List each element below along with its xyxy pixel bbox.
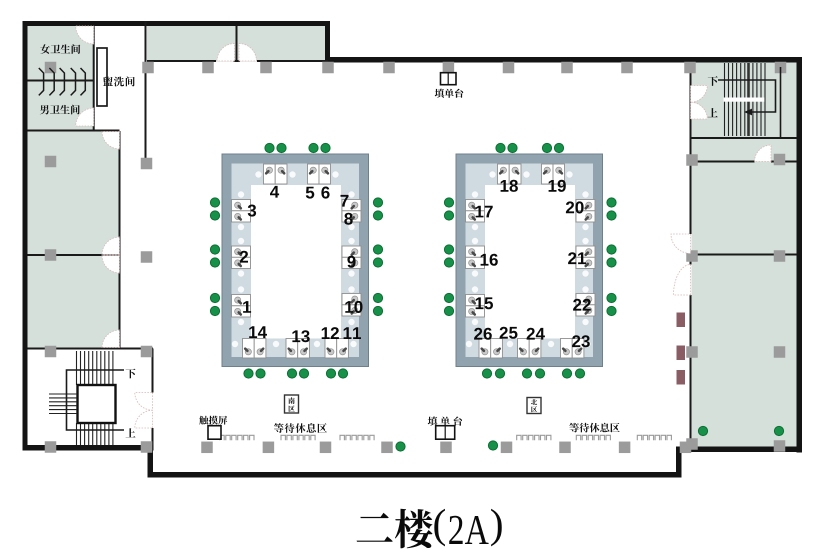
svg-text:): ) [490,501,504,548]
svg-text:(: ( [433,501,447,548]
svg-text:2A: 2A [448,508,490,551]
